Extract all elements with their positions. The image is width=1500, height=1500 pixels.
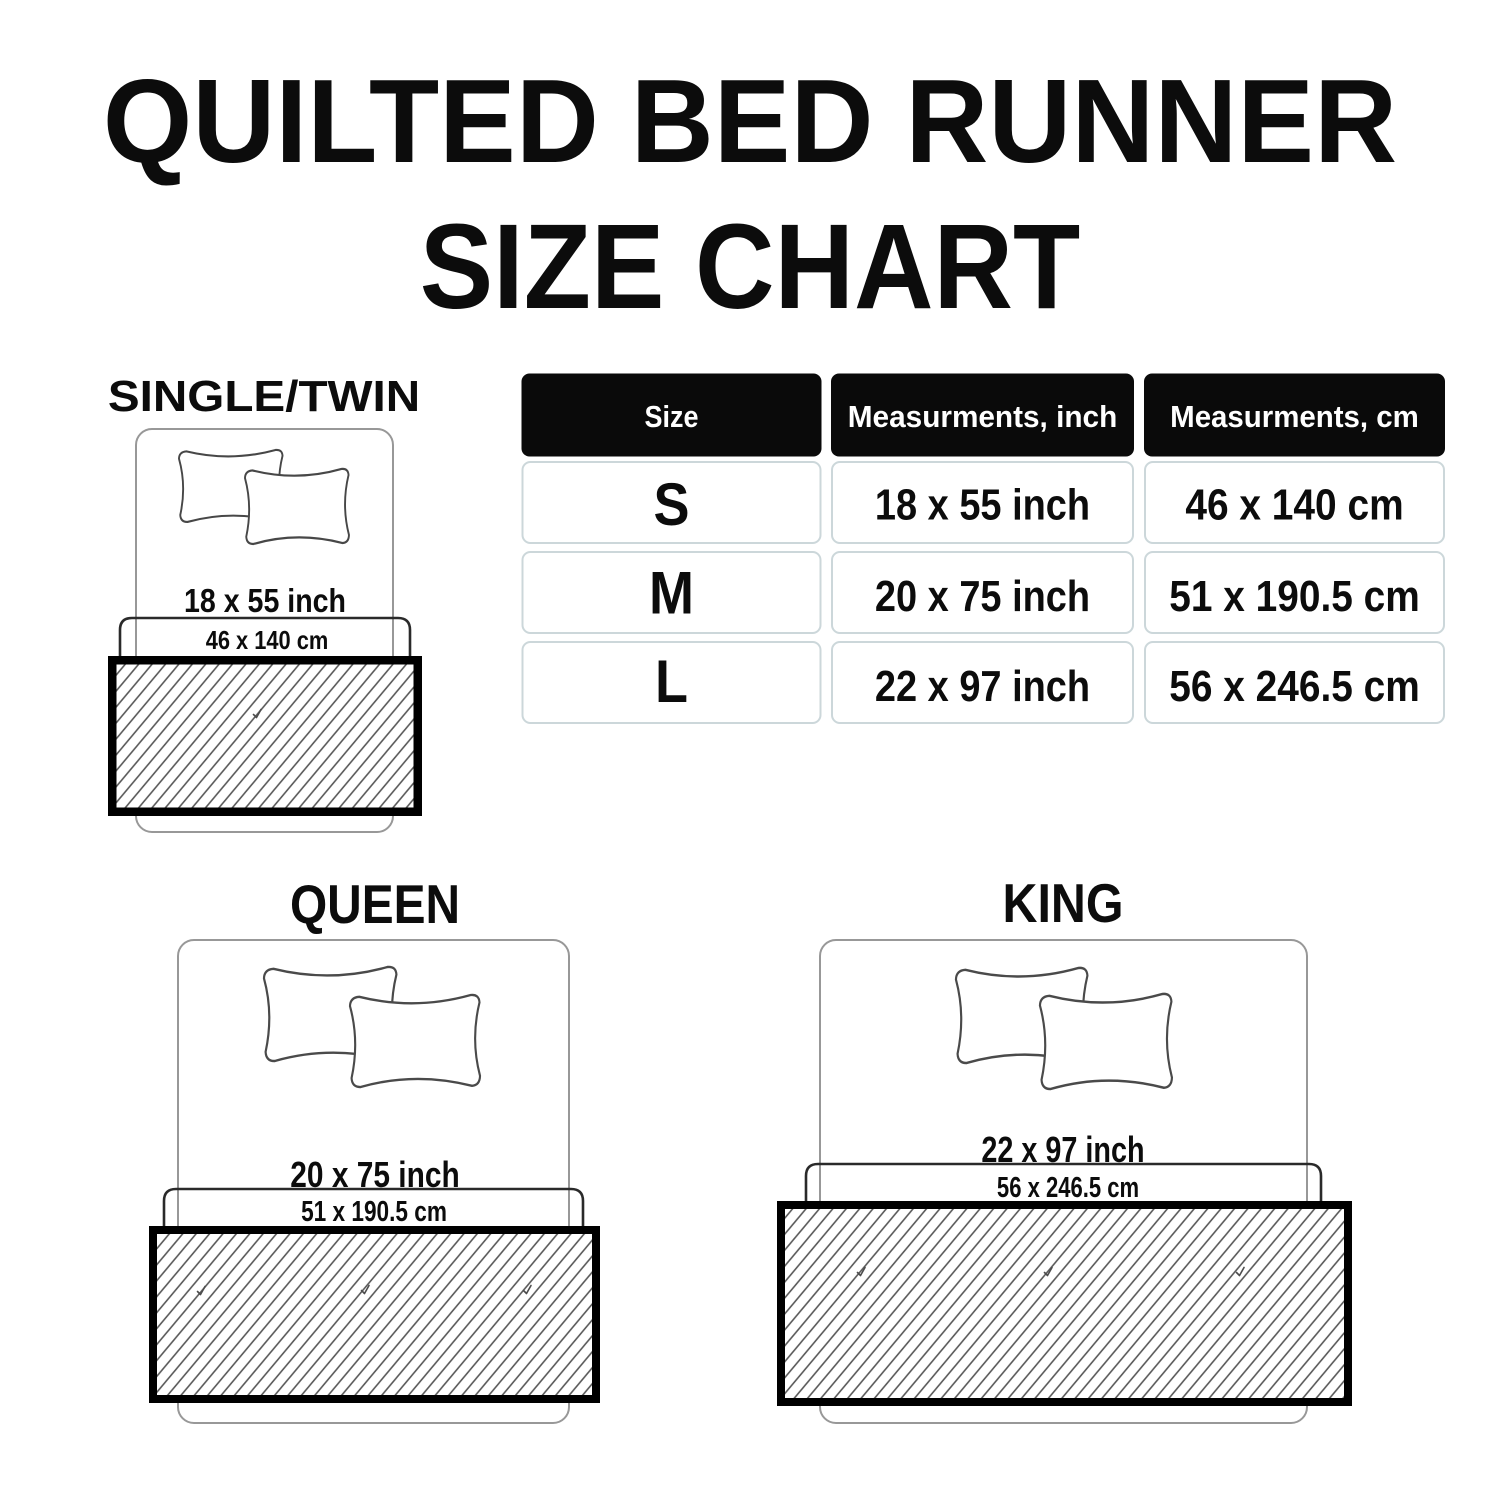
svg-text:18 x 55 inch: 18 x 55 inch bbox=[875, 480, 1090, 529]
svg-text:46 x 140 cm: 46 x 140 cm bbox=[206, 626, 329, 655]
svg-text:QUEEN: QUEEN bbox=[290, 873, 460, 935]
svg-text:KING: KING bbox=[1003, 872, 1124, 934]
svg-text:SIZE CHART: SIZE CHART bbox=[420, 198, 1081, 334]
svg-text:Size: Size bbox=[645, 400, 699, 434]
svg-text:51 x 190.5 cm: 51 x 190.5 cm bbox=[1169, 571, 1420, 621]
svg-text:L: L bbox=[655, 648, 688, 715]
svg-text:Measurments, inch: Measurments, inch bbox=[848, 399, 1117, 434]
svg-text:M: M bbox=[649, 560, 694, 627]
svg-text:SINGLE/TWIN: SINGLE/TWIN bbox=[108, 371, 420, 421]
svg-text:18 x 55 inch: 18 x 55 inch bbox=[184, 582, 346, 619]
svg-text:20 x 75 inch: 20 x 75 inch bbox=[875, 571, 1090, 620]
svg-text:56 x 246.5 cm: 56 x 246.5 cm bbox=[997, 1172, 1139, 1204]
svg-text:Measurments, cm: Measurments, cm bbox=[1170, 400, 1419, 434]
svg-text:QUILTED BED RUNNER: QUILTED BED RUNNER bbox=[103, 54, 1397, 187]
svg-text:51 x 190.5 cm: 51 x 190.5 cm bbox=[301, 1194, 447, 1227]
svg-text:46 x 140 cm: 46 x 140 cm bbox=[1185, 479, 1403, 529]
svg-text:56 x 246.5 cm: 56 x 246.5 cm bbox=[1169, 661, 1420, 711]
svg-text:22 x 97 inch: 22 x 97 inch bbox=[875, 661, 1090, 710]
svg-text:S: S bbox=[653, 471, 689, 538]
